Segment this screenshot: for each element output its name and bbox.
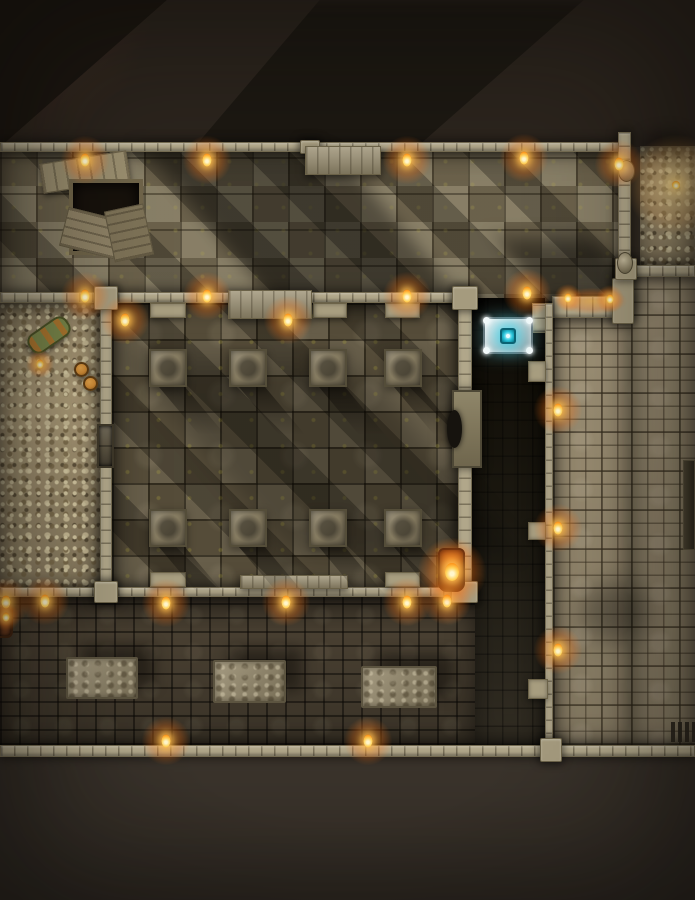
floor-grate <box>671 722 695 742</box>
altar-orb <box>483 347 490 354</box>
pillar-2 <box>229 349 267 387</box>
map-canvas[interactable] <box>0 0 695 900</box>
bone-pit-door[interactable] <box>97 424 114 468</box>
offmap-darkness-north <box>0 0 695 147</box>
wall-sconce-1 <box>618 160 635 182</box>
joint-east-mid <box>452 286 478 310</box>
arch-recess <box>447 410 462 448</box>
keg <box>83 376 98 391</box>
pillar-3 <box>309 349 347 387</box>
pillar-1 <box>149 349 187 387</box>
east-corridor <box>553 318 631 745</box>
south-wall <box>0 745 695 757</box>
glowing-altar[interactable] <box>483 317 533 354</box>
altar-orb <box>483 317 490 324</box>
barrel-body <box>24 313 74 357</box>
pillar-8 <box>384 509 422 547</box>
west-brazier <box>0 605 13 638</box>
pillar-4 <box>384 349 422 387</box>
green-barrel <box>30 314 80 358</box>
stone-table-3 <box>361 666 437 708</box>
joint-south-east <box>540 738 562 762</box>
joint-west-mid <box>94 286 118 310</box>
wall-sconce-2 <box>617 252 633 274</box>
altar-orb <box>526 347 533 354</box>
collapsed-trapdoor <box>55 163 153 265</box>
bone-niche-northeast <box>640 146 695 269</box>
wall-channel <box>683 460 695 550</box>
stone-table-1 <box>66 657 138 699</box>
offmap-darkness-south <box>0 757 695 900</box>
wall-stub-south-1 <box>150 572 186 587</box>
wall-stub-north-1 <box>150 303 186 318</box>
pillar-5 <box>149 509 187 547</box>
wall-stub-north-3 <box>385 303 420 318</box>
dark-passage-stub-2 <box>528 522 546 540</box>
burning-barrel <box>438 548 465 592</box>
joint-west-south <box>94 581 118 603</box>
altar-orb <box>526 317 533 324</box>
wall-stub-south-2 <box>385 572 420 587</box>
pillar-hall-north-dais <box>228 290 312 319</box>
altar-gem-icon <box>500 328 516 344</box>
keg <box>74 362 89 377</box>
wall-stub-north-2 <box>313 303 347 318</box>
joint-corridor-top <box>612 278 634 324</box>
stone-table-2 <box>213 660 286 703</box>
supply-barrels <box>72 362 104 398</box>
east-door-block <box>528 679 548 699</box>
south-hall-north-wall <box>0 587 475 597</box>
pillar-6 <box>229 509 267 547</box>
sarcophagus-slab <box>452 390 482 468</box>
north-dais <box>305 146 381 175</box>
dark-passage-stub-1 <box>528 361 546 382</box>
pillar-7 <box>309 509 347 547</box>
